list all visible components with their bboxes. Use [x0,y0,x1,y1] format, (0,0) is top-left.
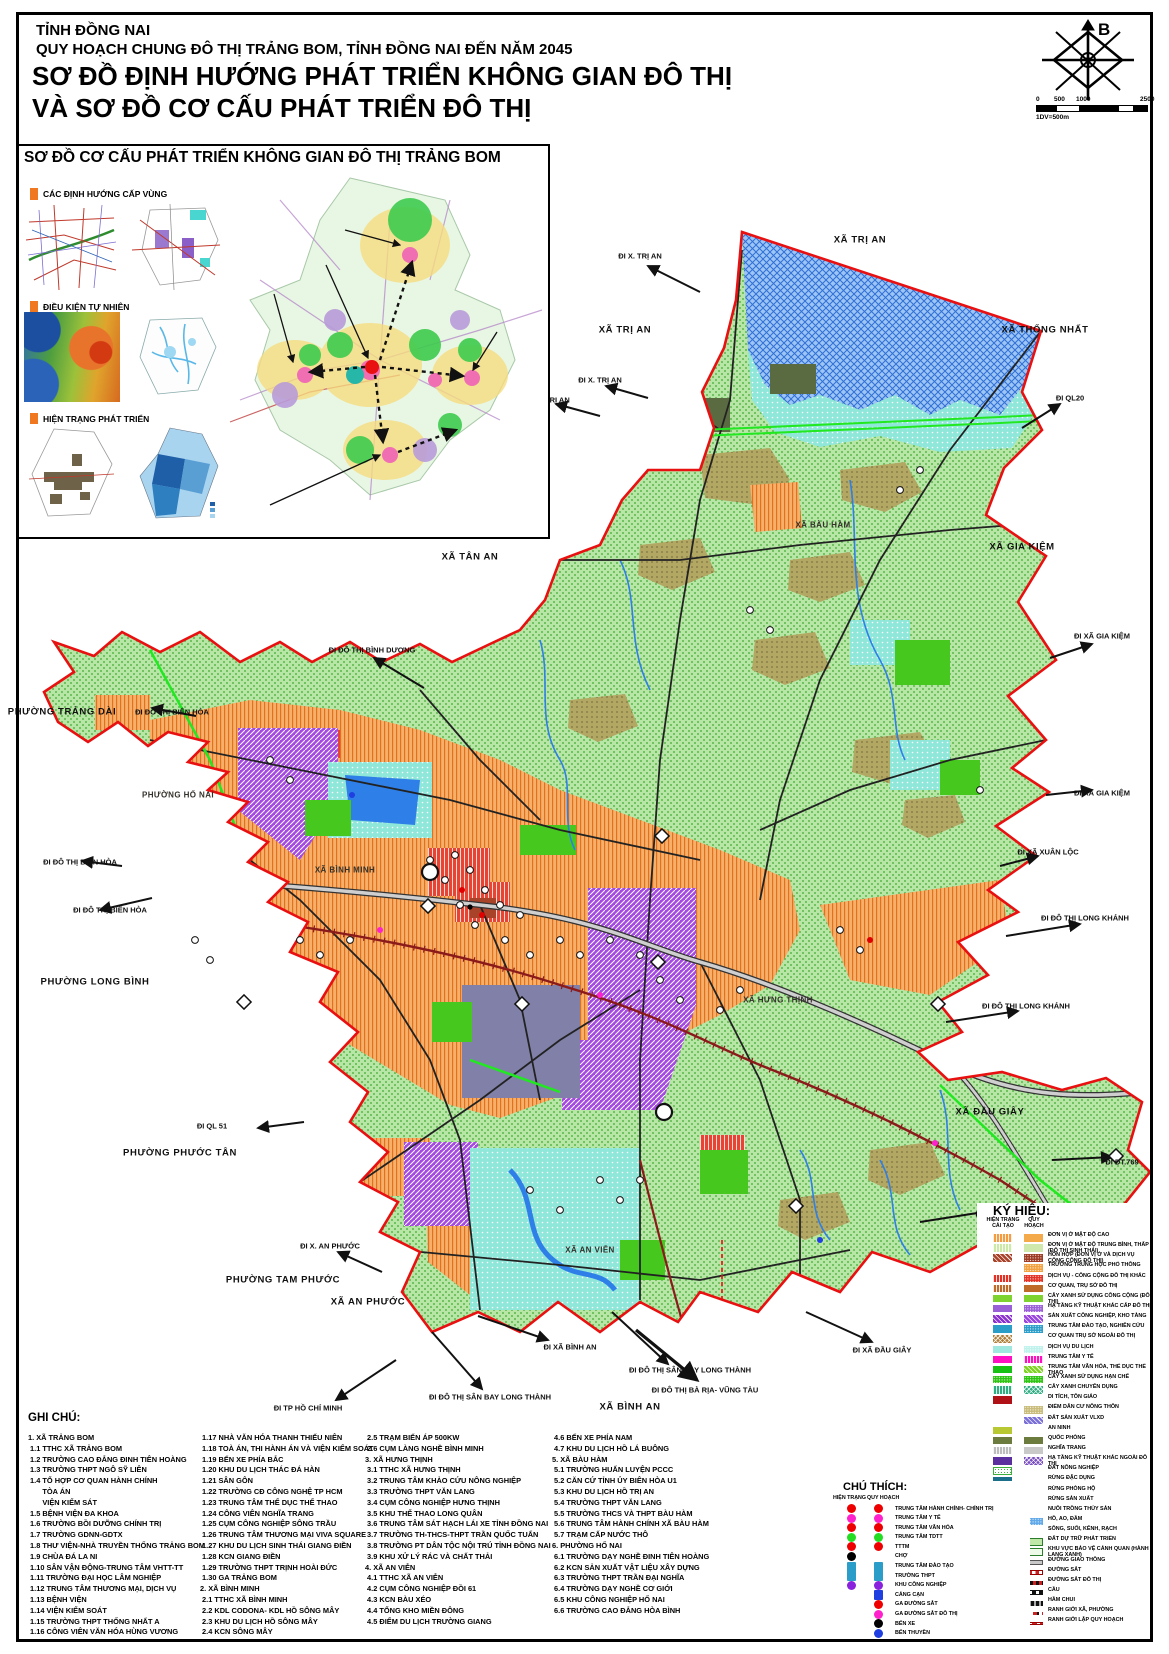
legend-swatch-planned [1024,1275,1043,1283]
note-line: 6.1 TRƯỜNG DẠY NGHỀ ĐINH TIÊN HOÀNG [552,1552,709,1563]
note-line: 5.4 TRƯỜNG THPT VĂN LANG [552,1498,709,1509]
legend-swatch-existing [993,1447,1012,1455]
legend-swatch-planned [1024,1366,1043,1374]
legend-item-label: ĐƠN VỊ Ở MẬT ĐỘ CAO [1048,1233,1152,1239]
note-line: 1.13 BỆNH VIỆN [28,1595,205,1606]
note-line: 5.5 TRƯỜNG THCS VÀ THPT BÀU HÀM [552,1509,709,1520]
symbol-existing [847,1562,856,1572]
orange-bullet-icon [30,188,38,200]
scale-bar: 050010002500 1DV=500m [1036,96,1148,121]
note-line: 1.15 TRƯỜNG THPT THỐNG NHẤT A [28,1617,205,1628]
note-line: 3.1 TTHC XÃ HƯNG THỊNH [365,1465,551,1476]
symbol-item: TRUNG TÂM TDTT [795,1533,1030,1543]
notes-column-3: 2.5 TRẠM BIẾN ÁP 500KW 2.6 CỤM LÀNG NGHỀ… [365,1433,551,1627]
symbol-existing [847,1552,856,1561]
point-symbols-items: TRUNG TÂM HÀNH CHÍNH- CHÍNH TRỊTRUNG TÂM… [795,1504,1030,1638]
thumbnail-regional-roads [24,200,120,294]
legend-item-label: HỒ, AO, ĐẦM [1048,1517,1152,1523]
symbol-existing [847,1533,856,1542]
legend-swatch-existing [993,1437,1012,1445]
legend-swatch-existing [993,1376,1012,1384]
note-line: 2. XÃ BÌNH MINH [200,1584,374,1595]
symbols-col-planned: QUY HOẠCH [867,1495,899,1501]
legend-item-label: ĐƯỜNG SẮT [1048,1568,1152,1574]
symbol-item: GA ĐƯỜNG SẮT [795,1600,1030,1610]
note-line: 6.2 KCN SẢN XUẤT VẬT LIỆU XÂY DỰNG [552,1563,709,1574]
symbol-item: GA ĐƯỜNG SẮT ĐÔ THỊ [795,1610,1030,1620]
point-symbols-title: CHÚ THÍCH: [843,1481,907,1493]
legend-swatch-existing [993,1427,1012,1435]
compass-rose-icon [1030,16,1146,102]
legend-swatch-existing [993,1346,1012,1354]
note-line: 4.5 ĐIỂM DU LỊCH TRƯỜNG GIANG [365,1617,551,1628]
note-line: 1.16 CÔNG VIÊN VĂN HÓA HÙNG VƯƠNG [28,1627,205,1638]
legend-swatch-existing [993,1467,1012,1475]
symbols-col-existing: HIỆN TRẠNG [833,1495,866,1501]
note-line: 1.7 TRƯỜNG GDNN-GDTX [28,1530,205,1541]
symbol-item: TRUNG TÂM HÀNH CHÍNH- CHÍNH TRỊ [795,1504,1030,1514]
note-line: 5.1 TRƯỜNG HUẤN LUYỆN PCCC [552,1465,709,1476]
note-line: 3.4 CỤM CÔNG NGHIỆP HƯNG THỊNH [365,1498,551,1509]
legend-item-label: HẦM CHUI [1048,1598,1152,1604]
legend-swatch-planned [1024,1437,1043,1445]
note-line: 1.1 TTHC XÃ TRẢNG BOM [28,1444,205,1455]
legend-swatch-planned [1024,1315,1043,1323]
legend-swatch-existing [993,1457,1012,1465]
symbol-planned [874,1629,883,1638]
symbol-existing [847,1514,856,1523]
symbol-planned [874,1600,883,1609]
legend-item-label: TRƯỜNG TRUNG HỌC PHỔ THÔNG [1048,1263,1152,1269]
note-line: 1.24 CÔNG VIÊN NGHĨA TRANG [200,1509,374,1520]
symbol-existing [847,1542,856,1551]
note-line: 1.11 TRƯỜNG ĐẠI HỌC LÂM NGHIỆP [28,1573,205,1584]
note-line: 3. XÃ HƯNG THỊNH [365,1455,551,1466]
legend-swatch-planned [1024,1386,1043,1394]
symbol-label: TRUNG TÂM TDTT [895,1534,943,1540]
note-line: 1.19 BẾN XE PHÍA BẮC [200,1455,374,1466]
thumbnail-builtup-status [24,424,120,524]
symbol-item: TRƯỜNG THPT [795,1571,1030,1581]
symbol-label: TTTM [895,1544,909,1550]
thumbnail-hydrology [130,312,226,402]
note-line: 1.9 CHÙA ĐÁ LA NI [28,1552,205,1563]
note-line: 1.14 VIỆN KIỂM SOÁT [28,1606,205,1617]
note-line: 2.2 KDL CODONA- KDL HỒ SÔNG MÂY [200,1606,374,1617]
scale-ticks: 050010002500 [1036,96,1148,104]
legend-item-label: NUÔI TRỒNG THỦY SẢN [1048,1507,1152,1513]
note-line: 3.6 TRUNG TÂM SÁT HẠCH LÁI XE TỈNH ĐỒNG … [365,1519,551,1530]
legend-swatch-planned [1024,1417,1043,1425]
note-line: 3.2 TRUNG TÂM KHẢO CỨU NÔNG NGHIỆP [365,1476,551,1487]
legend-item-label: ĐIỂM DÂN CƯ NÔNG THÔN [1048,1405,1152,1411]
inset-section-regional: CÁC ĐỊNH HƯỚNG CẤP VÙNG [30,188,167,200]
note-line: 1. XÃ TRẢNG BOM [28,1433,205,1444]
legend-swatch-existing [993,1366,1012,1374]
symbol-label: TRUNG TÂM VĂN HÓA [895,1525,954,1531]
legend-item-label: CƠ QUAN, TRỤ SỞ ĐÔ THỊ [1048,1284,1152,1290]
scale-tick: 0 [1036,96,1040,103]
note-line: 1.17 NHÀ VĂN HÓA THANH THIẾU NIÊN [200,1433,374,1444]
note-line: 3.8 TRƯỜNG PT DÂN TỘC NỘI TRÚ TỈNH ĐỒNG … [365,1541,551,1552]
symbol-planned [874,1581,883,1590]
note-line: 5.3 KHU DU LỊCH HỒ TRỊ AN [552,1487,709,1498]
symbol-item: BẾN XE [795,1619,1030,1629]
legend-item-label: ĐƯỜNG GIAO THÔNG [1048,1558,1152,1564]
legend-swatch-planned [1024,1295,1043,1303]
symbol-planned [874,1542,883,1551]
symbol-item: KHU CÔNG NGHIỆP [795,1581,1030,1591]
note-line: 5.6 TRUNG TÂM HÀNH CHÍNH XÃ BÀU HÀM [552,1519,709,1530]
structure-diagram-panel: SƠ ĐỒ CƠ CẤU PHÁT TRIỂN KHÔNG GIAN ĐÔ TH… [16,144,550,539]
note-line: 1.2 TRƯỜNG CAO ĐẲNG ĐINH TIÊN HOÀNG [28,1455,205,1466]
symbol-label: CẢNG CẠN [895,1592,924,1598]
legend-swatch-existing [993,1295,1012,1303]
map-title-line1: SƠ ĐỒ ĐỊNH HƯỚNG PHÁT TRIỂN KHÔNG GIAN Đ… [32,61,732,92]
symbol-item: TRUNG TÂM VĂN HÓA [795,1523,1030,1533]
legend-item-label: RỪNG PHÒNG HỘ [1048,1487,1152,1493]
note-line: 2.5 TRẠM BIẾN ÁP 500KW [365,1433,551,1444]
legend-item-label: ĐẤT SẢN XUẤT VLXD [1048,1416,1152,1422]
note-line: 3.9 KHU XỬ LÝ RÁC VÀ CHẤT THẢI [365,1552,551,1563]
symbol-label: TRUNG TÂM ĐÀO TẠO [895,1563,954,1569]
note-line: 5. XÃ BÀU HÀM [552,1455,709,1466]
symbol-label: TRƯỜNG THPT [895,1573,935,1579]
legend-swatch-planned [1024,1376,1043,1384]
legend-swatch-existing [993,1396,1012,1404]
legend-item-label: DỊCH VỤ DU LỊCH [1048,1345,1152,1351]
symbol-existing [847,1581,856,1590]
note-line: 1.25 CỤM CÔNG NGHIỆP SÔNG TRẦU [200,1519,374,1530]
note-line: 3.3 TRƯỜNG THPT VĂN LANG [365,1487,551,1498]
legend-swatch-planned [1024,1244,1043,1252]
province-title: TỈNH ĐỒNG NAI [36,22,150,39]
note-line: 2.3 KHU DU LỊCH HỒ SÔNG MÂY [200,1617,374,1628]
symbol-existing [847,1571,856,1581]
legend-swatch-planned [1024,1325,1043,1333]
symbol-label: GA ĐƯỜNG SẮT [895,1601,938,1607]
legend-swatch-existing [993,1244,1012,1252]
legend-swatch-existing [993,1356,1012,1364]
legend-item-label: RANH GIỚI XÃ, PHƯỜNG [1048,1608,1152,1614]
note-line: 6.3 TRƯỜNG THPT TRẦN ĐẠI NGHĨA [552,1573,709,1584]
note-line: 5.7 TRẠM CẤP NƯỚC THÔ [552,1530,709,1541]
legend-col-planned: QUY HOẠCH [1021,1218,1047,1230]
note-line: 2.6 CỤM LÀNG NGHỀ BÌNH MINH [365,1444,551,1455]
legend-item-label: RỪNG ĐẶC DỤNG [1048,1476,1152,1482]
legend-swatch-existing [993,1325,1012,1333]
symbol-planned [874,1610,883,1619]
notes-column-2: 1.17 NHÀ VĂN HÓA THANH THIẾU NIÊN 1.18 T… [200,1433,374,1638]
note-line: 5.2 CĂN CỨ TỈNH ỦY BIÊN HÒA U1 [552,1476,709,1487]
legend-swatch-existing [993,1234,1012,1242]
scale-note: 1DV=500m [1036,114,1148,121]
legend-swatch-planned [1024,1356,1043,1364]
symbol-planned [874,1619,883,1628]
note-line: 1.10 SÂN VẬN ĐỘNG-TRUNG TÂM VHTT-TT [28,1563,205,1574]
north-label: B [1098,20,1110,40]
legend-swatch-existing [993,1386,1012,1394]
note-line: TÒA ÁN [28,1487,205,1498]
note-line: 4.2 CỤM CÔNG NGHIỆP ĐỒI 61 [365,1584,551,1595]
legend-item-label: ĐẤT DỰ TRỮ PHÁT TRIỂN [1048,1537,1152,1543]
thumbnail-density-choropleth [130,424,226,524]
map-title-line2: VÀ SƠ ĐỒ CƠ CẤU PHÁT TRIỂN ĐÔ THỊ [32,93,531,124]
symbol-planned [874,1571,883,1581]
symbol-planned [874,1514,883,1523]
note-line: 6.6 TRƯỜNG CAO ĐẲNG HÒA BÌNH [552,1606,709,1617]
note-line: 4.7 KHU DU LỊCH HỒ LÁ BUÔNG [552,1444,709,1455]
symbol-planned [874,1562,883,1572]
legend-swatch-existing [993,1315,1012,1323]
symbol-item: TRUNG TÂM ĐÀO TẠO [795,1562,1030,1572]
legend-item-label: DI TÍCH, TÔN GIÁO [1048,1395,1152,1401]
note-line: 1.30 GA TRẢNG BOM [200,1573,374,1584]
note-line: 2.1 TTHC XÃ BÌNH MINH [200,1595,374,1606]
note-line: 1.3 TRƯỜNG THPT NGÔ SỸ LIÊN [28,1465,205,1476]
legend-item-label: AN NINH [1048,1426,1152,1432]
symbol-existing [847,1523,856,1532]
legend-swatch-planned [1024,1234,1043,1242]
legend-swatch-existing [993,1305,1012,1313]
legend-swatch-planned [1024,1346,1043,1354]
note-line: 1.27 KHU DU LỊCH SINH THÁI GIANG ĐIỀN [200,1541,374,1552]
note-line: 1.5 BỆNH VIỆN ĐA KHOA [28,1509,205,1520]
symbol-planned [874,1523,883,1532]
notes-column-4: 4.6 BẾN XE PHÍA NAM 4.7 KHU DU LỊCH HỒ L… [552,1433,709,1617]
symbol-label: GA ĐƯỜNG SẮT ĐÔ THỊ [895,1611,957,1617]
legend-swatch-planned [1024,1457,1043,1465]
symbol-planned [874,1504,883,1513]
note-line: 6.4 TRƯỜNG DẠY NGHỀ CƠ GIỚI [552,1584,709,1595]
symbol-label: BẾN THUYỀN [895,1630,930,1636]
note-line: 1.23 TRUNG TÂM THỂ DỤC THỂ THAO [200,1498,374,1509]
note-line: 4. XÃ AN VIỄN [365,1563,551,1574]
symbol-item: TRUNG TÂM Y TẾ [795,1514,1030,1524]
note-line: 1.28 KCN GIANG ĐIỀN [200,1552,374,1563]
legend-title: KÝ HIỆU: [993,1203,1153,1218]
notes-panel: GHI CHÚ: 1. XÃ TRẢNG BOM 1.1 TTHC XÃ TRẢ… [28,1412,708,1638]
note-line: VIỆN KIỂM SÁT [28,1498,205,1509]
legend-item-label: QUỐC PHÒNG [1048,1436,1152,1442]
concept-diagram [220,160,545,534]
legend-item-label: TRUNG TÂM Y TẾ [1048,1355,1152,1361]
legend-item: ĐIỂM DÂN CƯ NÔNG THÔN [977,1405,1153,1415]
legend-item-label: CƠ QUAN TRỤ SỞ NGOÀI ĐÔ THỊ [1048,1334,1152,1340]
legend-item-label: DỊCH VỤ - CÔNG CỘNG ĐÔ THỊ KHÁC [1048,1274,1152,1280]
note-line: 1.20 KHU DU LỊCH THÁC ĐÁ HÀN [200,1465,374,1476]
symbol-item: TTTM [795,1542,1030,1552]
notes-title: GHI CHÚ: [28,1412,708,1424]
thumbnail-elevation [24,312,120,402]
note-line: 1.22 TRƯỜNG CĐ CÔNG NGHỆ TP HCM [200,1487,374,1498]
note-line: 4.4 TỔNG KHO MIỀN ĐÔNG [365,1606,551,1617]
legend-item-label: ĐẤT NÔNG NGHIỆP [1048,1466,1152,1472]
symbol-planned [874,1590,883,1600]
legend-swatch-planned [1024,1285,1043,1293]
symbol-item: BẾN THUYỀN [795,1629,1030,1639]
legend-item-label: ĐƯỜNG SẮT ĐÔ THỊ [1048,1578,1152,1584]
legend-item-label: CÂY XANH SỬ DỤNG HẠN CHẾ [1048,1375,1152,1381]
legend-swatch-planned [1024,1305,1043,1313]
symbol-item: CHỢ [795,1552,1030,1562]
note-line: 1.8 THƯ VIỆN-NHÀ TRUYỀN THỐNG TRẢNG BOM [28,1541,205,1552]
legend-item-label: RỪNG SẢN XUẤT [1048,1497,1152,1503]
legend-item-label: TRUNG TÂM ĐÀO TẠO, NGHIÊN CỨU [1048,1324,1152,1330]
note-line: 1.21 SÂN GÔN [200,1476,374,1487]
scale-tick: 1000 [1076,96,1090,103]
symbol-planned [874,1533,883,1542]
symbol-item: CẢNG CẠN [795,1590,1030,1600]
note-line: 6. PHƯỜNG HỐ NAI [552,1541,709,1552]
symbol-label: KHU CÔNG NGHIỆP [895,1582,947,1588]
legend-swatch-existing [993,1285,1012,1293]
legend-item-label: SẢN XUẤT CÔNG NGHIỆP, KHO TÀNG [1048,1314,1152,1320]
note-line: 1.29 TRƯỜNG THPT TRỊNH HOÀI ĐỨC [200,1563,374,1574]
note-line: 2.4 KCN SÔNG MÂY [200,1627,374,1638]
legend-item-label: HẠ TẦNG KỸ THUẬT KHÁC CẤP ĐÔ THỊ [1048,1304,1152,1310]
note-line: 4.6 BẾN XE PHÍA NAM [552,1433,709,1444]
legend-swatch-planned [1024,1264,1043,1272]
legend-swatch-existing [993,1254,1012,1262]
note-line: 4.1 TTHC XÃ AN VIỄN [365,1573,551,1584]
legend-swatch-planned [1024,1447,1043,1455]
note-line: 1.6 TRƯỜNG BỒI DƯỠNG CHÍNH TRỊ [28,1519,205,1530]
legend-item-label: SÔNG, SUỐI, KÊNH, RẠCH [1048,1527,1152,1533]
symbol-existing [847,1504,856,1513]
legend-item-label: CẦU [1048,1588,1152,1594]
note-line: 3.7 TRƯỜNG TH-THCS-THPT TRẦN QUỐC TUẤN [365,1530,551,1541]
symbol-label: CHỢ [895,1553,907,1559]
note-line: 1.12 TRUNG TÂM THƯƠNG MẠI, DỊCH VỤ [28,1584,205,1595]
note-line: 6.5 KHU CÔNG NGHIỆP HỐ NAI [552,1595,709,1606]
note-line: 3.5 KHU THỂ THAO LONG QUÂN [365,1509,551,1520]
note-line: 1.26 TRUNG TÂM THƯƠNG MẠI VIVA SQUARE [200,1530,374,1541]
plan-subtitle: QUY HOẠCH CHUNG ĐÔ THỊ TRẢNG BOM, TỈNH Đ… [36,41,572,58]
symbol-label: TRUNG TÂM HÀNH CHÍNH- CHÍNH TRỊ [895,1506,994,1512]
legend-item-label: NGHĨA TRANG [1048,1446,1152,1452]
legend-item-label: CÂY XANH CHUYÊN DỤNG [1048,1385,1152,1391]
symbol-label: TRUNG TÂM Y TẾ [895,1515,941,1521]
scale-tick: 500 [1054,96,1065,103]
note-line: 1.18 TOÀ ÁN, THI HÀNH ÁN VÀ VIỆN KIỂM SO… [200,1444,374,1455]
scale-tick: 2500 [1140,96,1154,103]
notes-column-1: 1. XÃ TRẢNG BOM 1.1 TTHC XÃ TRẢNG BOM 1.… [28,1433,205,1638]
thumbnail-regional-landuse [130,200,226,294]
note-line: 4.3 KCN BÀU XÉO [365,1595,551,1606]
legend-item-label: RANH GIỚI LẬP QUY HOẠCH [1048,1618,1152,1624]
legend-swatch-planned [1024,1406,1043,1414]
note-line: 1.4 TỔ HỢP CƠ QUAN HÀNH CHÍNH [28,1476,205,1487]
legend-swatch-planned [1024,1254,1043,1262]
legend-swatch-existing [993,1335,1012,1343]
symbol-label: BẾN XE [895,1621,915,1627]
legend-swatch-existing [993,1275,1012,1283]
point-symbols-panel: CHÚ THÍCH: HIỆN TRẠNG QUY HOẠCH TRUNG TÂ… [795,1481,1030,1638]
scale-bar-segments [1036,105,1148,112]
